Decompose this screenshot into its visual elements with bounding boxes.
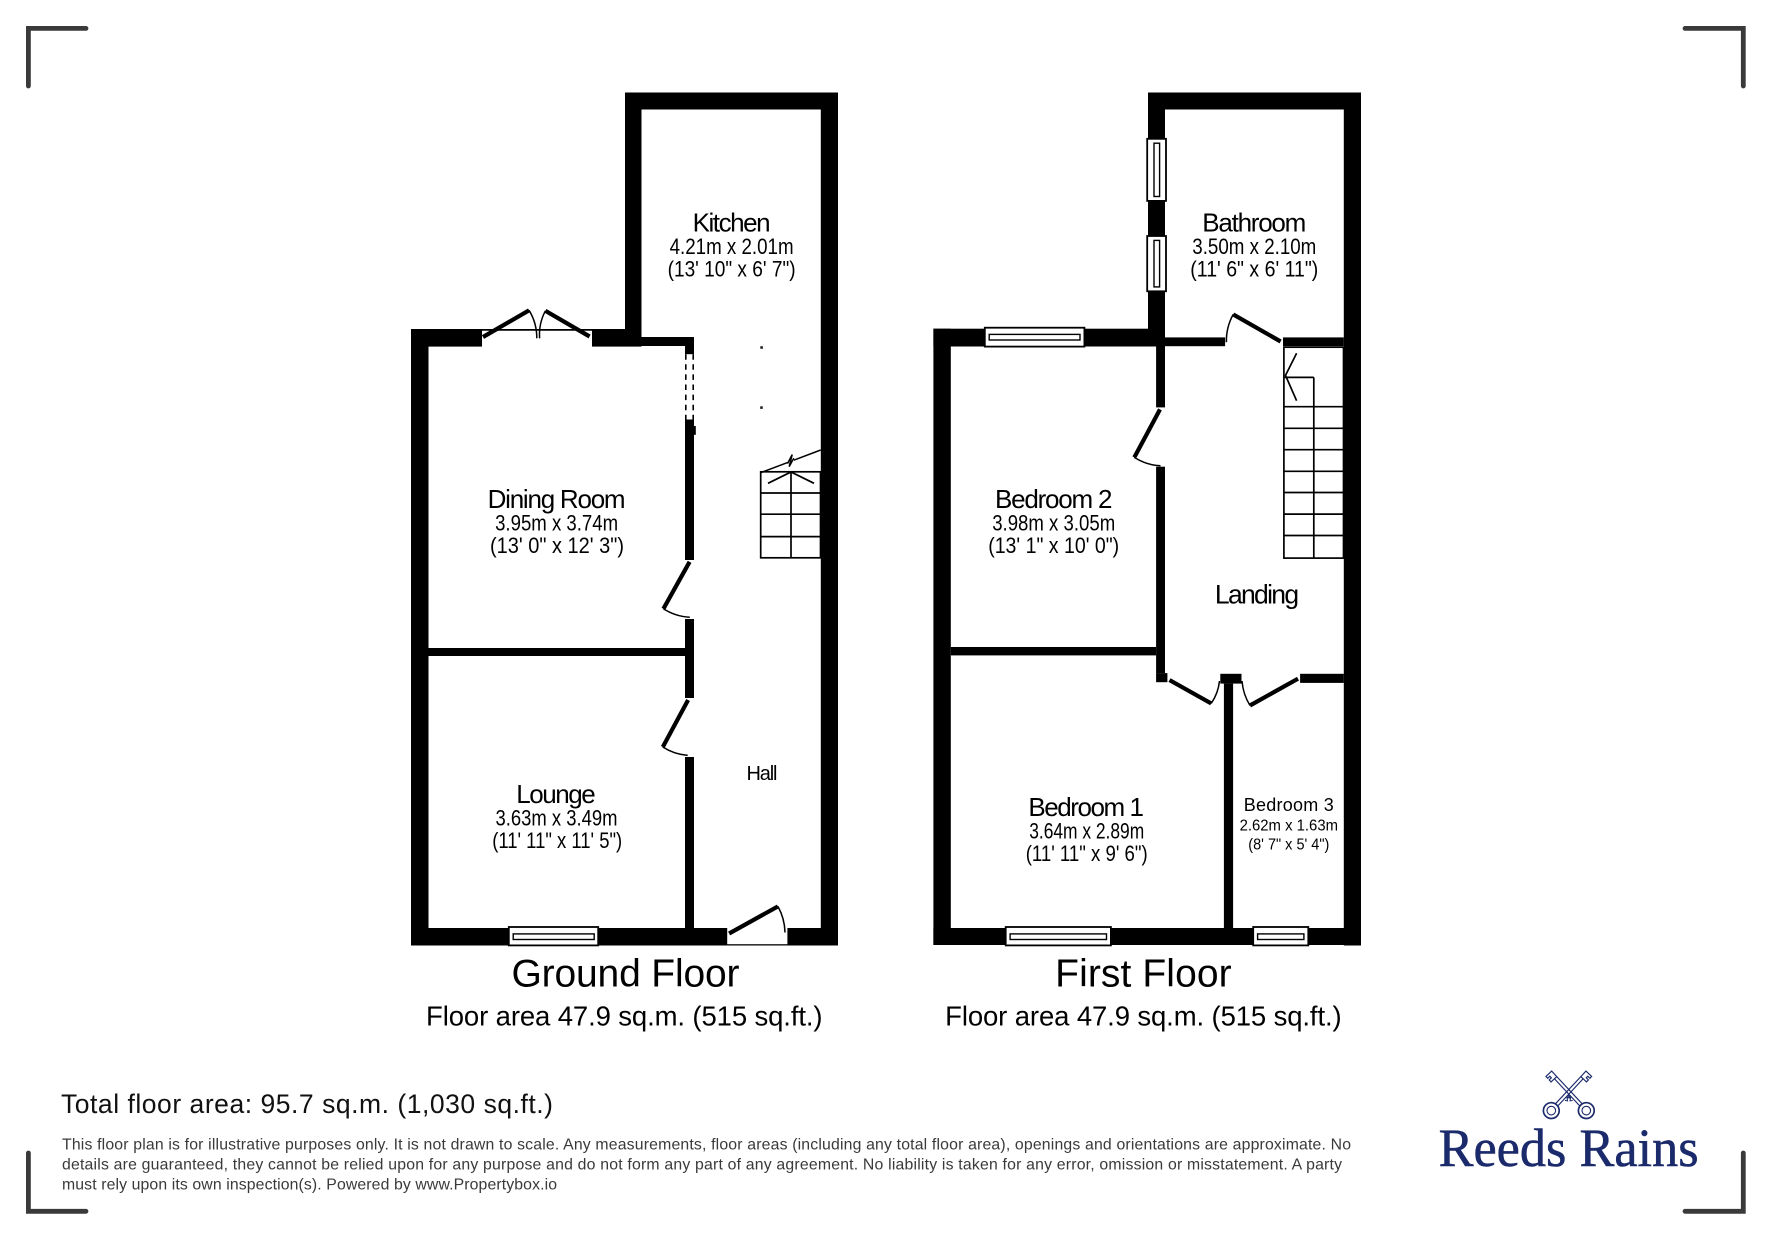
- svg-text:(13' 1" x 10' 0"): (13' 1" x 10' 0"): [988, 533, 1119, 558]
- svg-text:Total floor area: 95.7 sq.m. (: Total floor area: 95.7 sq.m. (1,030 sq.f…: [61, 1089, 553, 1119]
- svg-text:(11' 6" x 6' 11"): (11' 6" x 6' 11"): [1190, 257, 1318, 282]
- svg-text:3.63m x 3.49m: 3.63m x 3.49m: [496, 806, 618, 831]
- svg-text:(11' 11" x 11' 5"): (11' 11" x 11' 5"): [492, 828, 622, 853]
- svg-text:First Floor: First Floor: [1055, 953, 1232, 996]
- svg-text:Floor area 47.9 sq.m. (515 sq.: Floor area 47.9 sq.m. (515 sq.ft.): [426, 1001, 823, 1032]
- svg-text:This floor plan is for illustr: This floor plan is for illustrative purp…: [62, 1137, 1351, 1154]
- svg-text:2.62m x 1.63m: 2.62m x 1.63m: [1240, 818, 1338, 835]
- svg-text:3.64m x 2.89m: 3.64m x 2.89m: [1029, 819, 1144, 844]
- svg-text:(11' 11" x 9' 6"): (11' 11" x 9' 6"): [1026, 841, 1148, 866]
- svg-text:4.21m x 2.01m: 4.21m x 2.01m: [670, 234, 794, 259]
- svg-text:Lounge: Lounge: [516, 779, 596, 809]
- svg-text:Kitchen: Kitchen: [693, 208, 771, 238]
- svg-text:3.50m x 2.10m: 3.50m x 2.10m: [1192, 234, 1316, 259]
- svg-text:details are guaranteed, they c: details are guaranteed, they cannot be r…: [62, 1157, 1342, 1174]
- svg-text:Ground Floor: Ground Floor: [512, 953, 740, 996]
- svg-text:Bathroom: Bathroom: [1202, 208, 1306, 238]
- svg-text:Floor area 47.9 sq.m. (515 sq.: Floor area 47.9 sq.m. (515 sq.ft.): [945, 1001, 1342, 1032]
- svg-text:Landing: Landing: [1215, 580, 1299, 610]
- svg-text:must rely upon its own inspect: must rely upon its own inspection(s). Po…: [62, 1176, 557, 1193]
- svg-text:3.98m x 3.05m: 3.98m x 3.05m: [992, 511, 1115, 536]
- svg-text:3.95m x 3.74m: 3.95m x 3.74m: [495, 511, 618, 536]
- svg-text:Hall: Hall: [747, 763, 778, 785]
- svg-text:Bedroom 1: Bedroom 1: [1028, 792, 1144, 822]
- svg-text:Bedroom 2: Bedroom 2: [995, 484, 1113, 514]
- svg-text:Reeds Rains: Reeds Rains: [1439, 1118, 1699, 1178]
- svg-text:Dining Room: Dining Room: [488, 484, 626, 514]
- svg-text:(13' 10" x 6' 7"): (13' 10" x 6' 7"): [668, 257, 796, 282]
- svg-text:(13' 0" x 12' 3"): (13' 0" x 12' 3"): [490, 533, 624, 558]
- svg-text:Bedroom 3: Bedroom 3: [1244, 795, 1334, 815]
- svg-text:(8' 7" x 5' 4"): (8' 7" x 5' 4"): [1248, 837, 1329, 854]
